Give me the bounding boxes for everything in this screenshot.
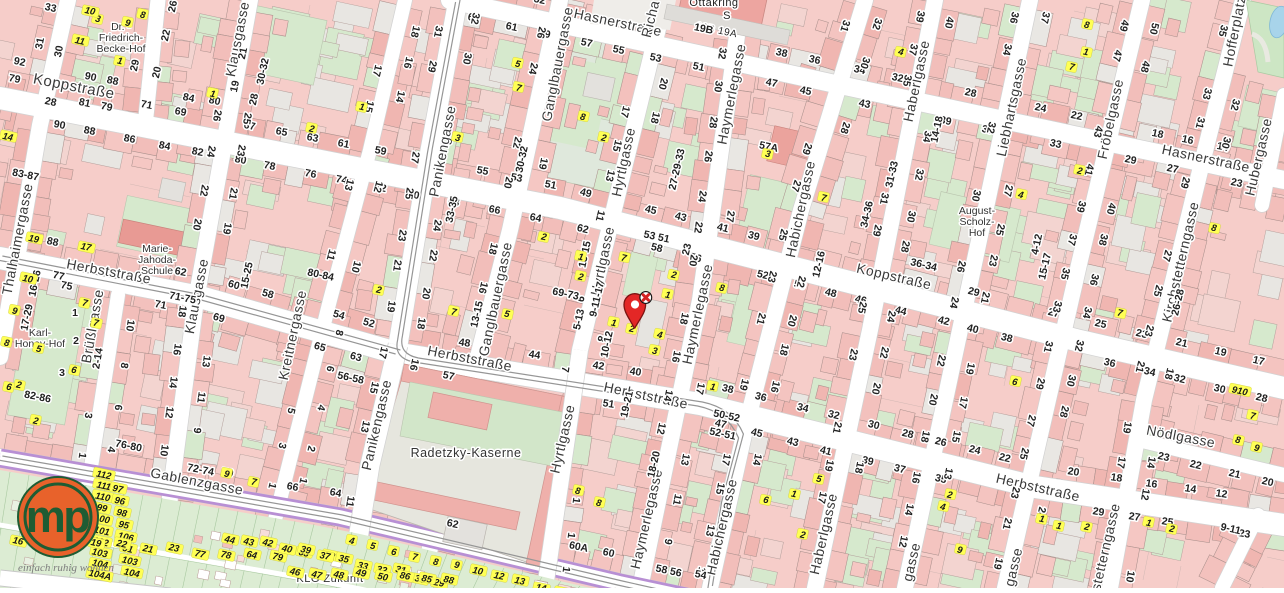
svg-text:19: 19	[220, 222, 234, 236]
svg-text:11: 11	[194, 391, 207, 404]
svg-text:29: 29	[870, 224, 884, 238]
svg-text:24: 24	[430, 219, 444, 233]
svg-text:20: 20	[419, 287, 433, 301]
svg-text:27: 27	[723, 210, 737, 223]
svg-text:11: 11	[343, 495, 357, 508]
svg-text:82: 82	[191, 145, 205, 159]
svg-text:66: 66	[488, 203, 502, 217]
svg-text:14: 14	[166, 376, 180, 389]
svg-text:12: 12	[162, 406, 176, 419]
svg-text:23: 23	[234, 144, 248, 158]
svg-text:14: 14	[1144, 456, 1158, 470]
svg-text:30: 30	[460, 52, 474, 66]
svg-text:Schule: Schule	[141, 265, 173, 277]
svg-text:26: 26	[166, 0, 180, 13]
svg-text:17: 17	[1114, 456, 1128, 470]
svg-text:32: 32	[912, 168, 926, 182]
svg-text:79: 79	[8, 72, 22, 86]
svg-text:13: 13	[199, 355, 213, 368]
svg-text:30: 30	[904, 210, 918, 224]
svg-text:22: 22	[691, 221, 705, 234]
svg-text:78: 78	[263, 159, 277, 173]
svg-text:86: 86	[123, 132, 137, 146]
svg-text:32: 32	[468, 12, 482, 26]
svg-text:29: 29	[425, 60, 439, 74]
svg-text:31: 31	[877, 192, 891, 206]
svg-text:mp: mp	[26, 491, 90, 542]
svg-text:27: 27	[1128, 510, 1142, 524]
svg-text:66: 66	[286, 480, 300, 494]
svg-text:einfach ruhig wohnen: einfach ruhig wohnen	[18, 562, 114, 574]
svg-text:23: 23	[395, 229, 409, 243]
svg-text:48: 48	[458, 336, 472, 350]
svg-text:12: 12	[1215, 487, 1229, 501]
svg-text:51: 51	[544, 178, 558, 192]
svg-text:21: 21	[390, 259, 404, 273]
svg-text:40: 40	[629, 365, 643, 379]
svg-text:19: 19	[1120, 421, 1134, 435]
svg-text:16: 16	[170, 343, 184, 356]
svg-text:64: 64	[529, 211, 543, 225]
svg-text:61: 61	[337, 137, 351, 151]
svg-text:26: 26	[210, 109, 224, 123]
svg-text:27: 27	[408, 151, 422, 165]
svg-text:10: 10	[123, 319, 137, 333]
svg-text:76: 76	[304, 167, 318, 181]
svg-text:37: 37	[906, 43, 920, 57]
svg-text:31: 31	[33, 36, 47, 50]
svg-text:24: 24	[884, 310, 898, 324]
svg-text:18: 18	[414, 317, 428, 331]
svg-text:90: 90	[53, 118, 67, 132]
svg-text:25: 25	[402, 187, 416, 201]
svg-text:62: 62	[174, 265, 188, 279]
svg-text:29: 29	[1092, 505, 1106, 519]
svg-text:25: 25	[240, 112, 254, 126]
svg-text:21: 21	[226, 187, 240, 201]
svg-text:35: 35	[900, 74, 914, 88]
svg-text:30: 30	[52, 44, 66, 58]
svg-text:18: 18	[1110, 471, 1124, 485]
svg-text:28: 28	[898, 240, 912, 254]
svg-text:12: 12	[1138, 488, 1152, 502]
svg-text:S: S	[723, 10, 731, 22]
svg-text:28: 28	[706, 116, 720, 129]
svg-text:30: 30	[711, 80, 725, 93]
svg-text:14: 14	[1184, 482, 1198, 496]
svg-text:40: 40	[942, 16, 956, 30]
svg-text:2: 2	[73, 335, 79, 347]
svg-text:24: 24	[204, 145, 218, 159]
svg-text:22: 22	[426, 249, 440, 263]
svg-text:24: 24	[695, 190, 709, 203]
svg-text:26: 26	[701, 150, 715, 163]
svg-text:44: 44	[528, 348, 542, 362]
svg-text:42: 42	[592, 359, 606, 373]
svg-text:71: 71	[140, 98, 154, 112]
svg-text:3: 3	[59, 367, 65, 379]
svg-text:20: 20	[190, 218, 204, 232]
svg-text:Hof: Hof	[969, 227, 985, 239]
svg-text:59: 59	[374, 144, 388, 158]
svg-text:32: 32	[715, 47, 729, 60]
svg-text:39: 39	[913, 10, 927, 24]
svg-text:21: 21	[141, 543, 155, 556]
svg-text:18: 18	[175, 305, 189, 318]
svg-text:19: 19	[384, 300, 398, 314]
svg-text:84: 84	[158, 139, 172, 153]
svg-text:Radetzky-Kaserne: Radetzky-Kaserne	[411, 446, 522, 460]
svg-text:10: 10	[157, 444, 171, 457]
svg-text:69: 69	[174, 105, 188, 119]
svg-text:65: 65	[275, 125, 289, 139]
svg-text:Becke-Hof: Becke-Hof	[96, 43, 145, 55]
svg-text:10: 10	[1123, 570, 1137, 584]
svg-text:22: 22	[197, 184, 211, 198]
svg-text:Ottakring: Ottakring	[689, 0, 738, 9]
svg-text:88: 88	[83, 124, 97, 138]
svg-text:51: 51	[602, 397, 616, 411]
svg-text:55: 55	[476, 164, 490, 178]
svg-text:20: 20	[1067, 465, 1081, 479]
svg-text:1: 1	[72, 307, 78, 319]
svg-text:25: 25	[855, 301, 869, 315]
svg-text:64: 64	[329, 486, 343, 500]
svg-text:71: 71	[154, 298, 168, 312]
svg-text:31: 31	[431, 25, 445, 39]
